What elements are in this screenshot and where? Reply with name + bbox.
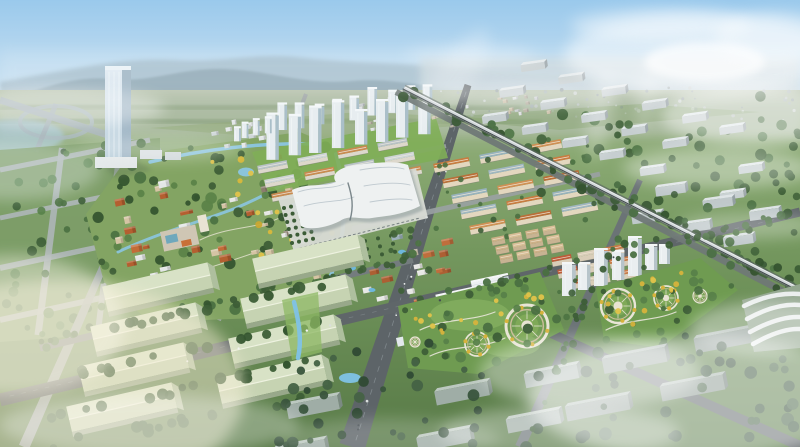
pond-south <box>339 373 361 383</box>
mist <box>480 336 700 408</box>
masterplan-birdseye-view <box>0 0 800 447</box>
scene-root <box>0 0 800 447</box>
pool <box>369 288 376 292</box>
cloud <box>445 83 615 107</box>
aerial-city-rendering <box>0 0 800 447</box>
garden-plaza <box>410 337 420 347</box>
cloud <box>75 135 245 161</box>
